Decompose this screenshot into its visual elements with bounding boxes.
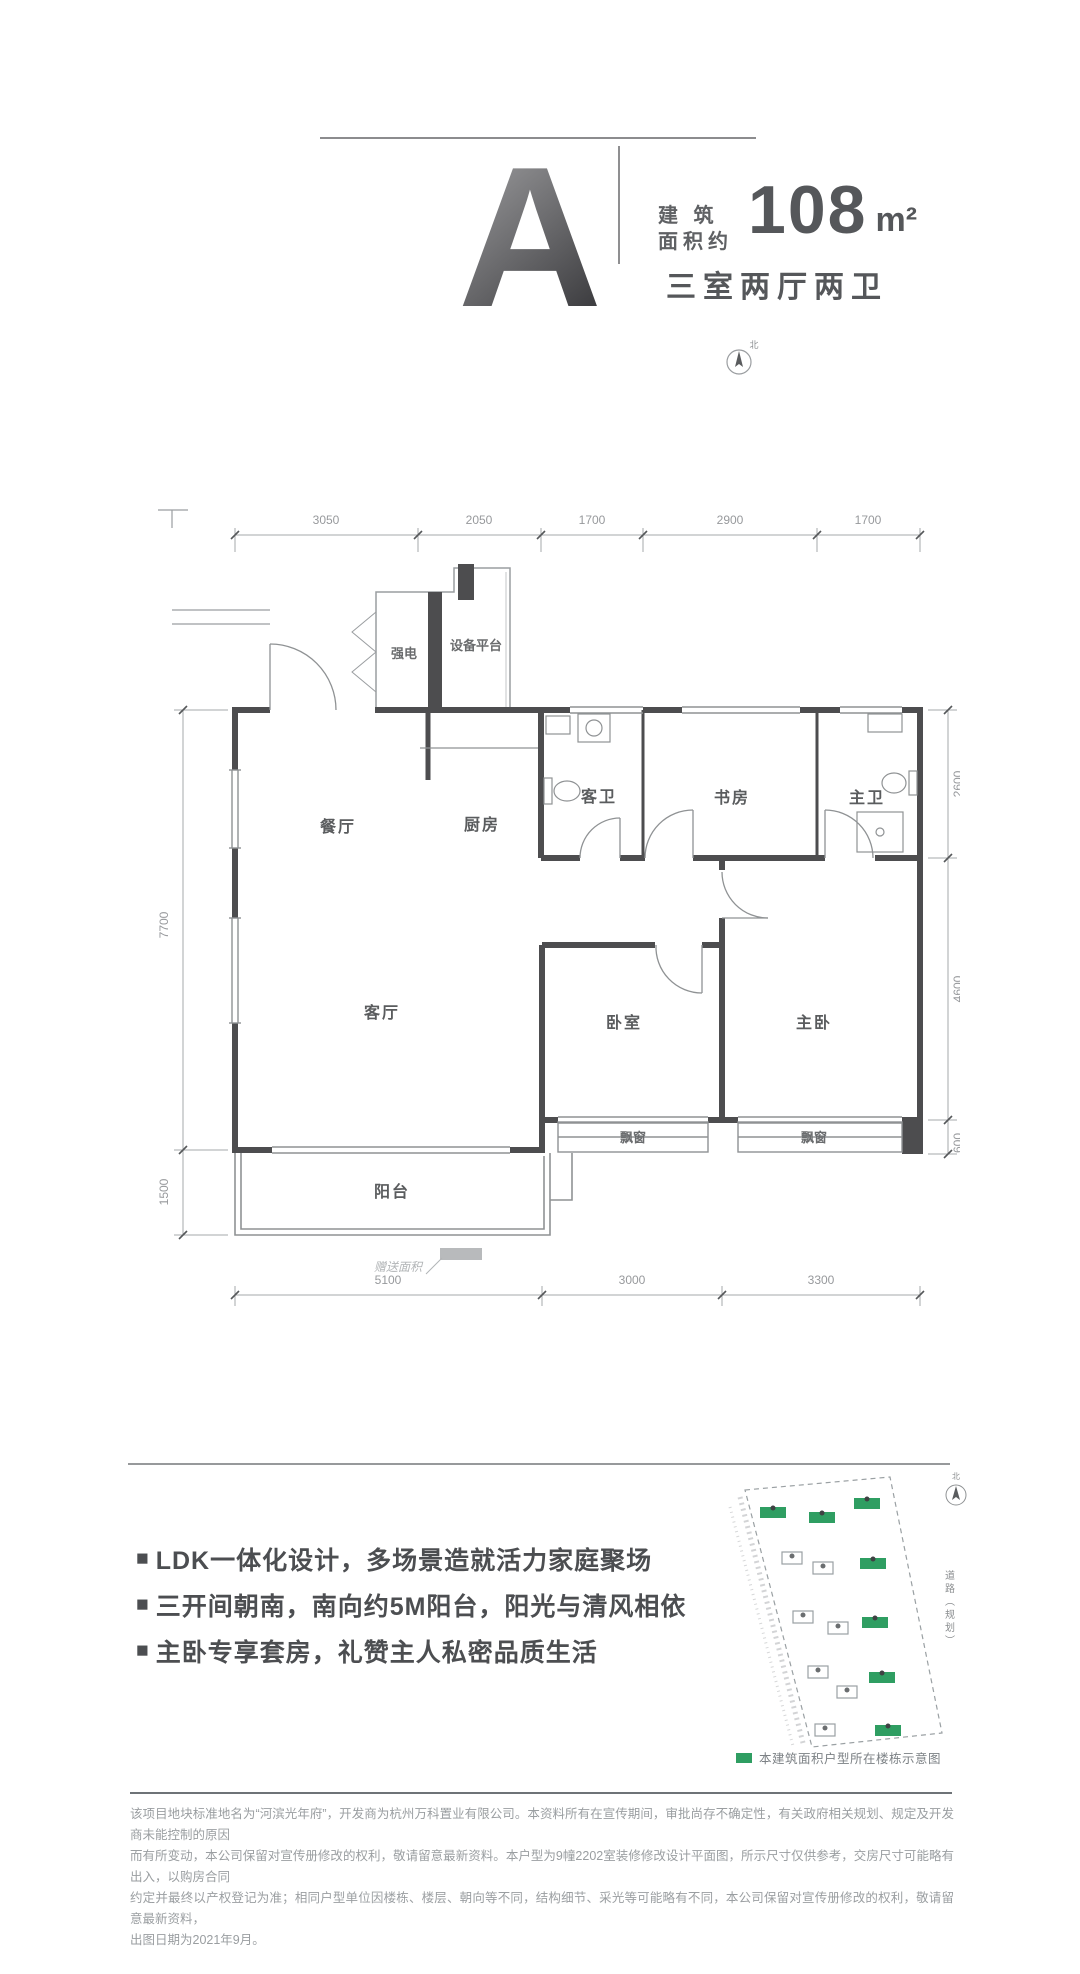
area-unit: m² (875, 196, 917, 244)
equipment-platform-outline (352, 564, 510, 710)
building-markers-green (760, 1498, 901, 1736)
room-label-guest-bath: 客卫 (581, 787, 617, 806)
dim-top-5: 1700 (855, 513, 882, 527)
dimension-ticks (179, 531, 952, 1299)
disclaimer: 该项目地块标准地名为“河滨光年府”，开发商为杭州万科置业有限公司。本资料所有在宣… (130, 1804, 954, 1951)
sink-icon (546, 716, 570, 734)
dimension-labels: 3050 2050 1700 2900 1700 5100 3000 3300 … (157, 513, 960, 1287)
shower-icon (857, 812, 903, 852)
thin-walls (643, 710, 817, 858)
bay-window-label-left: 飘窗 (620, 1130, 646, 1145)
disclaimer-line: 约定并最终以产权登记为准；相同户型单位因楼栋、楼层、朝向等不同，结构细节、采光等… (130, 1888, 954, 1930)
walls (232, 707, 923, 1154)
dim-bottom-1: 5100 (375, 1273, 402, 1287)
disclaimer-rule (130, 1792, 952, 1794)
dim-right-1: 2600 (951, 770, 960, 797)
area-value: 108 (748, 176, 867, 244)
dim-left-2: 1500 (157, 1178, 171, 1205)
building-markers-gray (782, 1552, 857, 1736)
bay-window-label-right: 飘窗 (801, 1130, 827, 1145)
toilet-icon (909, 771, 917, 795)
feature-text: LDK一体化设计，多场景造就活力家庭聚场 (156, 1541, 652, 1577)
dim-top-1: 3050 (313, 513, 340, 527)
dim-top-4: 2900 (717, 513, 744, 527)
disclaimer-line: 出图日期为2021年9月。 (130, 1930, 954, 1951)
dim-bottom-2: 3000 (619, 1273, 646, 1287)
feature-item: ■ 主卧专享套房，礼赞主人私密品质生活 (136, 1628, 686, 1674)
room-label-master-bath: 主卫 (849, 788, 885, 807)
dim-left-1: 7700 (157, 911, 171, 938)
equipment-platform-label: 设备平台 (450, 638, 502, 653)
area-value-row: 108 m² (748, 176, 917, 244)
area-prefix: 建 筑 面积约 (658, 203, 733, 255)
legend-green-swatch-icon (736, 1753, 752, 1763)
windows (229, 707, 902, 1153)
plan-compass: 北 (718, 336, 764, 382)
doors (270, 644, 873, 993)
flyer-page: A 建 筑 面积约 108 m² 三室两厅两卫 北 (0, 0, 1080, 1974)
area-prefix-line1: 建 筑 (658, 203, 733, 229)
area-prefix-line2: 面积约 (658, 229, 733, 255)
entry-ledge (158, 510, 270, 624)
strong-electric-label: 强电 (391, 646, 417, 661)
building-dots (790, 1554, 850, 1731)
road-label: 道路（规划） (943, 1569, 955, 1648)
compass-north-label: 北 (952, 1472, 960, 1481)
unit-letter: A (458, 132, 602, 332)
site-map: 北 (640, 1455, 970, 1755)
bullet-square-icon: ■ (136, 1593, 150, 1617)
bonus-area-annotation: 赠送面积 (374, 1258, 442, 1274)
legend-text: 本建筑面积户型所在楼栋示意图 (759, 1748, 941, 1767)
layout-summary: 三室两厅两卫 (666, 262, 888, 306)
ac-platform (440, 1248, 482, 1260)
floor-plan: 3050 2050 1700 2900 1700 5100 3000 3300 … (110, 440, 960, 1320)
site-map-legend: 本建筑面积户型所在楼栋示意图 (736, 1748, 941, 1767)
compass-north-label: 北 (749, 340, 758, 350)
dim-bottom-3: 3300 (808, 1273, 835, 1287)
room-label-bedroom: 卧室 (606, 1013, 642, 1032)
building-dots-green (771, 1497, 891, 1729)
bay-windows (558, 1122, 902, 1152)
dim-right-2: 4600 (951, 975, 960, 1002)
green-belt (730, 1507, 793, 1746)
washer-icon (578, 714, 610, 742)
dimension-lines (174, 528, 957, 1306)
feature-text: 三开间朝南，南向约5M阳台，阳光与清风相依 (156, 1587, 687, 1623)
room-label-study: 书房 (714, 788, 750, 807)
feature-list: ■ LDK一体化设计，多场景造就活力家庭聚场 ■ 三开间朝南，南向约5M阳台，阳… (136, 1536, 686, 1674)
compass-needle-icon (952, 1486, 960, 1500)
site-map-compass: 北 (946, 1472, 966, 1505)
room-label-master-bedroom: 主卧 (796, 1013, 832, 1032)
bullet-square-icon: ■ (136, 1547, 150, 1571)
header-divider (618, 146, 620, 264)
dim-top-3: 1700 (579, 513, 606, 527)
disclaimer-line: 该项目地块标准地名为“河滨光年府”，开发商为杭州万科置业有限公司。本资料所有在宣… (130, 1804, 954, 1846)
dim-right-3: 600 (951, 1133, 960, 1153)
feature-item: ■ 三开间朝南，南向约5M阳台，阳光与清风相依 (136, 1582, 686, 1628)
svg-text:赠送面积: 赠送面积 (374, 1260, 424, 1274)
feature-text: 主卧专享套房，礼赞主人私密品质生活 (156, 1633, 598, 1669)
sink-icon (868, 714, 902, 732)
room-label-living: 客厅 (364, 1003, 400, 1022)
unit-letter-graphic: A (430, 132, 630, 332)
toilet-icon (544, 778, 552, 804)
room-label-dining: 餐厅 (319, 817, 356, 836)
room-label-kitchen: 厨房 (464, 815, 500, 834)
bullet-square-icon: ■ (136, 1639, 150, 1663)
room-label-balcony: 阳台 (374, 1182, 410, 1201)
dim-top-2: 2050 (466, 513, 493, 527)
feature-item: ■ LDK一体化设计，多场景造就活力家庭聚场 (136, 1536, 686, 1582)
compass-needle-icon (735, 351, 743, 367)
disclaimer-line: 而有所变动，本公司保留对宣传册修改的权利，敬请留意最新资料。本户型为9幢2202… (130, 1846, 954, 1888)
corner-wall-chunk (902, 1120, 920, 1154)
louvre-vent-icon (352, 612, 376, 692)
